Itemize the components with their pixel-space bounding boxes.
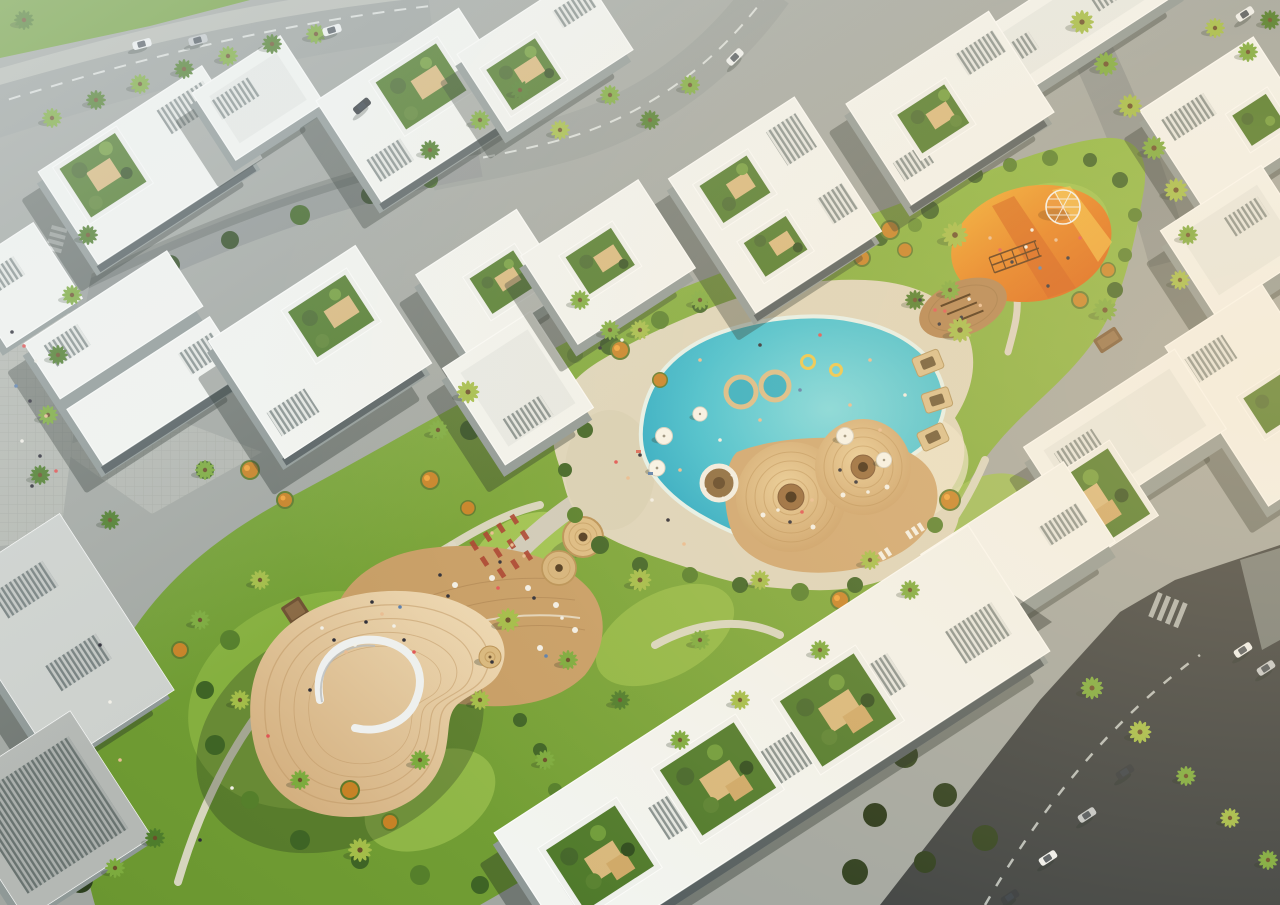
scene-canvas: Aerial rendering of a residential commun… bbox=[0, 0, 1280, 905]
sun-glow bbox=[0, 0, 1280, 905]
aerial-rendering-figure: Aerial rendering of a residential commun… bbox=[0, 0, 1280, 905]
light-overlays bbox=[0, 0, 1280, 905]
